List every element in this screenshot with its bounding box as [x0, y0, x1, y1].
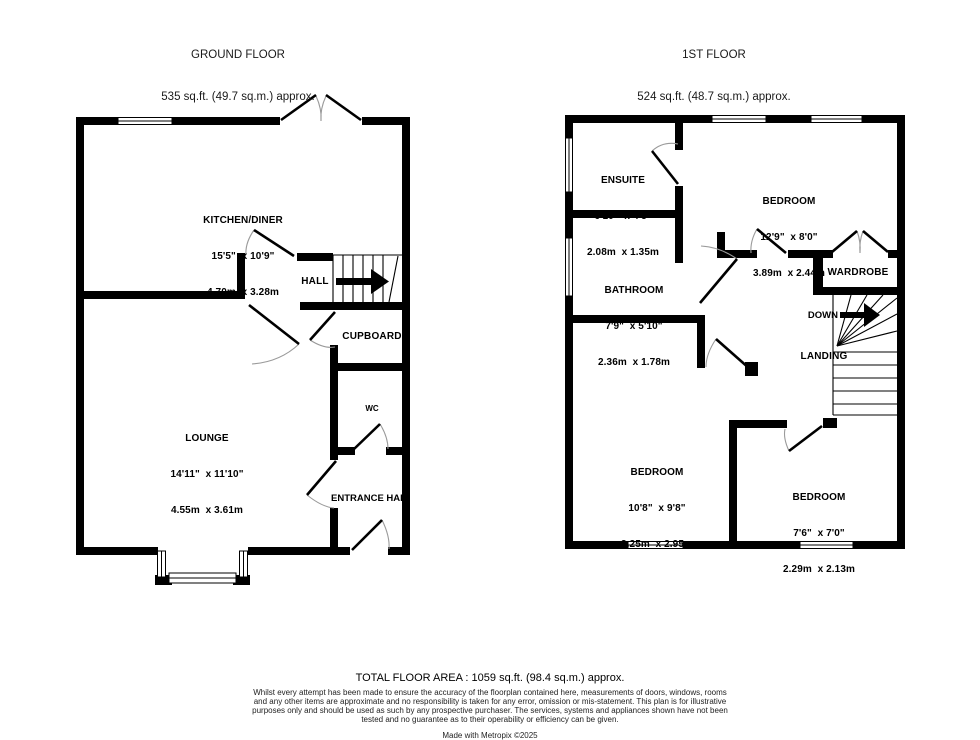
disclaimer-text: Whilst every attempt has been made to en…: [251, 688, 729, 724]
hall-label: HALL: [301, 276, 328, 287]
ground-floor-area: 535 sq.ft. (49.7 sq.m.) approx.: [161, 90, 314, 104]
bedroom3-name: BEDROOM: [783, 492, 855, 504]
floorplan-page: GROUND FLOOR 535 sq.ft. (49.7 sq.m.) app…: [0, 0, 980, 738]
ensuite-size-imperial: 6'10" x 4'5": [587, 211, 659, 223]
down-label: DOWN: [800, 310, 838, 321]
first-floor-title: 1ST FLOOR: [637, 48, 790, 62]
ensuite-name: ENSUITE: [587, 175, 659, 187]
bathroom-size-metric: 2.36m x 1.78m: [598, 357, 670, 369]
ground-floor-header: GROUND FLOOR 535 sq.ft. (49.7 sq.m.) app…: [161, 20, 314, 118]
bedroom1-name: BEDROOM: [753, 196, 825, 208]
kitchen-label: KITCHEN/DINER 15'5" x 10'9" 4.70m x 3.28…: [203, 191, 283, 311]
lounge-label: LOUNGE 14'11" x 11'10" 4.55m x 3.61m: [170, 409, 243, 529]
lounge-size-metric: 4.55m x 3.61m: [170, 505, 243, 517]
bedroom2-size-imperial: 10'8" x 9'8": [621, 503, 693, 515]
entrance-hall-label: ENTRANCE HALL: [331, 493, 402, 504]
bedroom2-label: BEDROOM 10'8" x 9'8" 3.25m x 2.95m: [621, 443, 693, 563]
kitchen-name: KITCHEN/DINER: [203, 215, 283, 227]
credit-text: Made with Metropix ©2025: [442, 731, 537, 740]
ground-floor-title: GROUND FLOOR: [161, 48, 314, 62]
bedroom1-size-metric: 3.89m x 2.44m: [753, 268, 825, 280]
bedroom2-size-metric: 3.25m x 2.95m: [621, 539, 693, 551]
lounge-size-imperial: 14'11" x 11'10": [170, 469, 243, 481]
wc-label: WC: [365, 404, 378, 413]
bedroom1-size-imperial: 12'9" x 8'0": [753, 232, 825, 244]
door-leaves: [249, 95, 382, 550]
bedroom1-label: BEDROOM 12'9" x 8'0" 3.89m x 2.44m: [753, 172, 825, 292]
total-floor-area: TOTAL FLOOR AREA : 1059 sq.ft. (98.4 sq.…: [356, 672, 625, 684]
ensuite-label: ENSUITE 6'10" x 4'5" 2.08m x 1.35m: [587, 151, 659, 271]
bedroom3-size-metric: 2.29m x 2.13m: [783, 564, 855, 576]
kitchen-size-metric: 4.70m x 3.28m: [203, 287, 283, 299]
lounge-name: LOUNGE: [170, 433, 243, 445]
bathroom-size-imperial: 7'9" x 5'10": [598, 321, 670, 333]
floorplan-drawing: [0, 0, 980, 738]
bedroom3-label: BEDROOM 7'6" x 7'0" 2.29m x 2.13m: [783, 468, 855, 588]
ensuite-size-metric: 2.08m x 1.35m: [587, 247, 659, 259]
bedroom3-size-imperial: 7'6" x 7'0": [783, 528, 855, 540]
bathroom-label: BATHROOM 7'9" x 5'10" 2.36m x 1.78m: [598, 261, 670, 381]
kitchen-size-imperial: 15'5" x 10'9": [203, 251, 283, 263]
bedroom2-name: BEDROOM: [621, 467, 693, 479]
bathroom-name: BATHROOM: [598, 285, 670, 297]
cupboard-label: CUPBOARD: [342, 331, 401, 342]
wardrobe-label: WARDROBE: [827, 267, 888, 278]
first-floor-header: 1ST FLOOR 524 sq.ft. (48.7 sq.m.) approx…: [637, 20, 790, 118]
landing-label: LANDING: [801, 351, 848, 362]
ground-floor-doors: [246, 95, 389, 550]
first-floor-area: 524 sq.ft. (48.7 sq.m.) approx.: [637, 90, 790, 104]
